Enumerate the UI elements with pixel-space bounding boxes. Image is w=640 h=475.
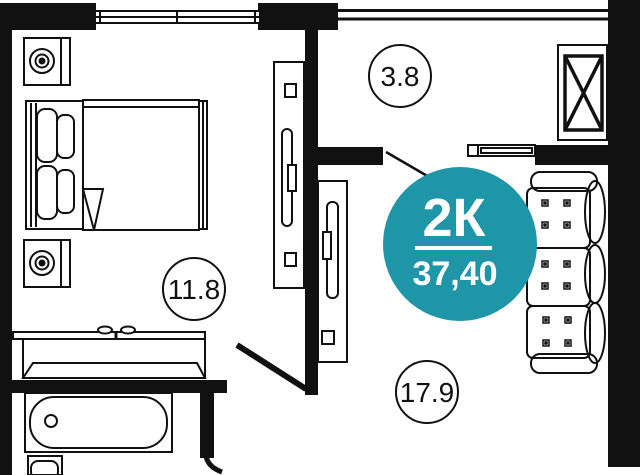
bedroom-door-leaf — [237, 345, 306, 389]
floor-plan: 3.8 11.8 17.9 2К 37,40 — [0, 0, 640, 475]
wall-top-left — [0, 3, 96, 30]
sofa — [527, 172, 605, 373]
bed — [26, 100, 207, 230]
wall-hallway-top-line-1 — [338, 9, 608, 12]
hall-console — [468, 145, 535, 156]
badge-divider — [415, 246, 492, 250]
bedroom-area-value: 11.8 — [168, 274, 220, 305]
pillow — [57, 170, 74, 213]
walls — [0, 0, 640, 475]
wall-middle-vertical — [305, 28, 318, 395]
knob — [98, 327, 112, 334]
sofa-back-cushion — [585, 181, 605, 243]
knob — [121, 327, 135, 334]
wardrobe-living — [318, 181, 347, 362]
pillow — [37, 109, 57, 162]
bathroom-door-swing — [206, 456, 222, 472]
room-label-bedroom: 11.8 — [163, 258, 225, 320]
room-label-living: 17.9 — [396, 361, 458, 423]
badge-total-area: 37,40 — [412, 255, 497, 293]
wall-hall-living-left — [305, 147, 383, 165]
dresser — [13, 327, 205, 379]
nightstand-bottom — [24, 240, 70, 287]
room-label-hallway: 3.8 — [369, 45, 431, 107]
sofa-back-cushion — [585, 303, 605, 363]
pillow — [57, 115, 74, 158]
sofa-back-cushion — [585, 245, 605, 303]
area-badge: 2К 37,40 — [383, 152, 537, 321]
sofa-cushion — [527, 306, 590, 358]
drain-icon — [45, 415, 57, 427]
shaft — [558, 45, 607, 140]
wall-bathroom-right — [200, 392, 214, 458]
badge-rooms-label: 2К — [423, 188, 487, 248]
badge-leader-line — [386, 152, 429, 177]
floor-plan-canvas: 3.8 11.8 17.9 2К 37,40 — [0, 0, 640, 475]
washbasin — [28, 456, 62, 475]
wardrobe-bedroom — [274, 62, 304, 288]
wall-top-mid — [258, 3, 338, 30]
bathtub — [25, 393, 172, 452]
wall-bathroom-top — [0, 380, 227, 393]
blanket — [83, 100, 199, 230]
nightstand-top — [24, 38, 70, 85]
bedroom-window — [95, 11, 260, 23]
wall-hall-living-right — [535, 145, 610, 165]
pillow — [37, 166, 57, 219]
sofa-cushion — [527, 248, 590, 306]
hallway-area-value: 3.8 — [381, 61, 420, 92]
wall-hallway-top-line-2 — [338, 18, 608, 21]
doors — [206, 345, 306, 472]
wall-right — [608, 0, 640, 467]
sofa-tufting-buttons — [542, 200, 571, 346]
wall-left — [0, 3, 12, 475]
living-area-value: 17.9 — [400, 377, 455, 408]
